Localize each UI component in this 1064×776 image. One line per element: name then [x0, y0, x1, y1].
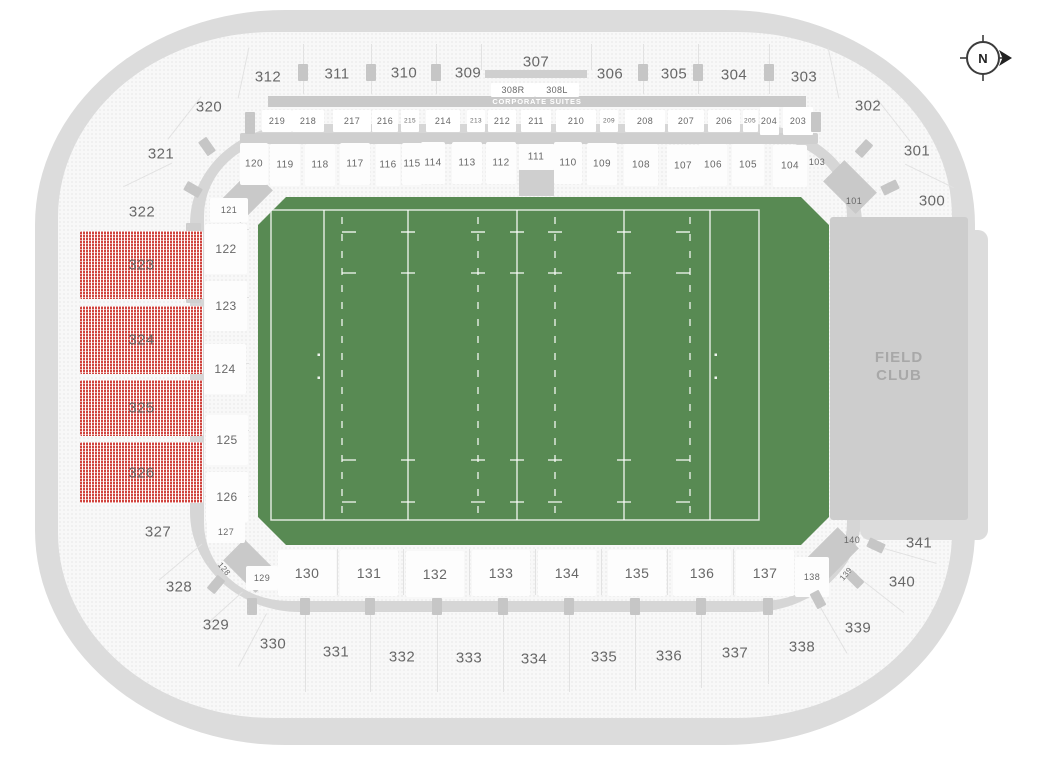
section-divider	[481, 44, 482, 70]
section-divider	[591, 44, 592, 70]
section-303[interactable]: 303	[791, 69, 817, 86]
section-divider	[503, 615, 504, 692]
section-324[interactable]: 324	[128, 332, 154, 349]
section-105[interactable]: 105	[739, 160, 757, 171]
section-304[interactable]: 304	[721, 67, 747, 84]
vomitory-entrance	[696, 598, 706, 615]
section-328[interactable]: 328	[166, 579, 192, 596]
section-339[interactable]: 339	[845, 620, 871, 637]
section-332[interactable]: 332	[389, 649, 415, 666]
field-markings	[258, 197, 829, 545]
section-307[interactable]: 307	[523, 54, 549, 71]
section-140[interactable]: 140	[844, 535, 860, 545]
section-divider	[337, 549, 338, 595]
section-302[interactable]: 302	[855, 98, 881, 115]
suite-203[interactable]: 203	[790, 116, 806, 126]
section-334[interactable]: 334	[521, 651, 547, 668]
vomitory-entrance	[432, 598, 442, 615]
section-divider	[403, 549, 404, 595]
section-divider	[305, 612, 306, 692]
suite-206[interactable]: 206	[716, 116, 732, 126]
vomitory-entrance	[298, 64, 308, 81]
section-340[interactable]: 340	[889, 574, 915, 591]
suite-214[interactable]: 214	[435, 116, 451, 126]
section-101[interactable]: 101	[846, 196, 862, 206]
section-divider	[370, 614, 371, 692]
section-337[interactable]: 337	[722, 645, 748, 662]
suite-218[interactable]: 218	[300, 116, 316, 126]
section-135[interactable]: 135	[625, 565, 650, 581]
rugby-field	[258, 197, 829, 545]
section-335[interactable]: 335	[591, 649, 617, 666]
vomitory-entrance	[630, 598, 640, 615]
section-137[interactable]: 137	[753, 565, 778, 581]
section-103[interactable]: 103	[809, 157, 825, 167]
vomitory-entrance	[638, 64, 648, 81]
section-divider	[469, 549, 470, 595]
vomitory-entrance	[498, 598, 508, 615]
section-325[interactable]: 325	[128, 400, 154, 417]
section-divider	[768, 610, 769, 684]
suite-308-bar	[485, 70, 587, 78]
section-divider	[701, 612, 702, 688]
section-divider	[635, 614, 636, 690]
suite-216[interactable]: 216	[377, 116, 393, 126]
section-133[interactable]: 133	[489, 565, 514, 581]
section-106[interactable]: 106	[704, 160, 722, 171]
section-321[interactable]: 321	[148, 146, 174, 163]
section-124[interactable]: 124	[214, 362, 235, 376]
section-336[interactable]: 336	[656, 648, 682, 665]
section-109[interactable]: 109	[593, 159, 611, 170]
vomitory-entrance	[431, 64, 441, 81]
section-123[interactable]: 123	[215, 299, 236, 313]
section-330[interactable]: 330	[260, 636, 286, 653]
compass-north-label: N	[978, 51, 987, 66]
section-331[interactable]: 331	[323, 644, 349, 661]
suite-205[interactable]: 205	[744, 118, 756, 125]
section-311[interactable]: 311	[324, 66, 349, 83]
suite-213[interactable]: 213	[470, 118, 482, 125]
section-327[interactable]: 327	[145, 524, 171, 541]
upper-concourse-band	[240, 133, 818, 144]
section-320[interactable]: 320	[196, 99, 222, 116]
north-tunnel	[519, 170, 554, 196]
section-110[interactable]: 110	[559, 158, 576, 169]
section-310[interactable]: 310	[391, 65, 417, 82]
section-111[interactable]: 111	[528, 152, 544, 163]
section-129[interactable]: 129	[254, 573, 270, 583]
section-329[interactable]: 329	[203, 617, 229, 634]
section-134[interactable]: 134	[555, 565, 580, 581]
section-306[interactable]: 306	[597, 66, 623, 83]
section-114[interactable]: 114	[424, 158, 441, 169]
suite-204[interactable]: 204	[761, 116, 777, 126]
section-108[interactable]: 108	[632, 160, 650, 171]
suite-219[interactable]: 219	[269, 116, 285, 126]
section-divider	[667, 549, 668, 595]
section-312[interactable]: 312	[255, 69, 281, 86]
section-113[interactable]: 113	[458, 158, 475, 169]
section-115[interactable]: 115	[403, 159, 420, 170]
suite-211[interactable]: 211	[528, 116, 544, 126]
vomitory-entrance	[693, 64, 703, 81]
compass: N	[955, 30, 1015, 90]
section-326[interactable]: 326	[128, 464, 154, 481]
section-118[interactable]: 118	[311, 160, 328, 171]
section-120[interactable]: 120	[245, 159, 263, 170]
section-divider	[733, 549, 734, 595]
suite-308r[interactable]: 308R	[501, 85, 524, 95]
section-107[interactable]: 107	[674, 161, 692, 172]
vomitory-entrance	[811, 112, 821, 132]
section-divider	[601, 549, 602, 595]
vomitory-entrance	[564, 598, 574, 615]
vomitory-entrance	[245, 112, 255, 134]
section-132[interactable]: 132	[423, 566, 448, 582]
section-125[interactable]: 125	[216, 433, 237, 447]
section-300[interactable]: 300	[919, 193, 945, 210]
vomitory-entrance	[365, 598, 375, 615]
suite-210[interactable]: 210	[568, 116, 584, 126]
field-club-label: FIELD CLUB	[858, 349, 940, 385]
section-130[interactable]: 130	[295, 565, 320, 581]
suite-207[interactable]: 207	[678, 116, 694, 126]
suite-217[interactable]: 217	[344, 116, 360, 126]
section-309[interactable]: 309	[455, 65, 481, 82]
corporate-suites-label: CORPORATE SUITES	[492, 97, 581, 106]
section-122[interactable]: 122	[215, 242, 236, 256]
section-divider	[535, 549, 536, 595]
section-117[interactable]: 117	[346, 159, 363, 170]
vomitory-entrance	[300, 598, 310, 615]
suite-208[interactable]: 208	[637, 116, 653, 126]
section-121[interactable]: 121	[221, 205, 237, 215]
section-338[interactable]: 338	[789, 639, 815, 656]
vomitory-entrance	[763, 598, 773, 615]
section-305[interactable]: 305	[661, 66, 687, 83]
vomitory-entrance	[366, 64, 376, 81]
suite-212[interactable]: 212	[494, 116, 510, 126]
section-127[interactable]: 127	[218, 527, 234, 537]
section-116[interactable]: 116	[379, 160, 396, 171]
vomitory-entrance	[247, 598, 257, 615]
suite-308l[interactable]: 308L	[546, 85, 568, 95]
section-138[interactable]: 138	[804, 572, 820, 582]
section-divider	[437, 615, 438, 692]
section-323[interactable]: 323	[128, 257, 154, 274]
suite-215[interactable]: 215	[404, 118, 416, 125]
section-divider	[569, 615, 570, 692]
section-341[interactable]: 341	[906, 535, 932, 552]
section-333[interactable]: 333	[456, 650, 482, 667]
section-322[interactable]: 322	[129, 204, 155, 221]
corporate-suites-bar: CORPORATE SUITES	[268, 96, 806, 107]
field-club-area[interactable]: FIELD CLUB	[830, 217, 968, 520]
section-301[interactable]: 301	[904, 143, 930, 160]
section-136[interactable]: 136	[690, 565, 715, 581]
section-112[interactable]: 112	[492, 158, 509, 169]
suite-209[interactable]: 209	[603, 118, 615, 125]
section-131[interactable]: 131	[357, 565, 382, 581]
section-126[interactable]: 126	[216, 490, 237, 504]
vomitory-entrance	[764, 64, 774, 81]
stadium-seat-map: FIELD CLUB CORPORATE SUITES N 2192182172…	[0, 0, 1064, 776]
section-119[interactable]: 119	[276, 160, 293, 171]
section-104[interactable]: 104	[781, 161, 799, 172]
